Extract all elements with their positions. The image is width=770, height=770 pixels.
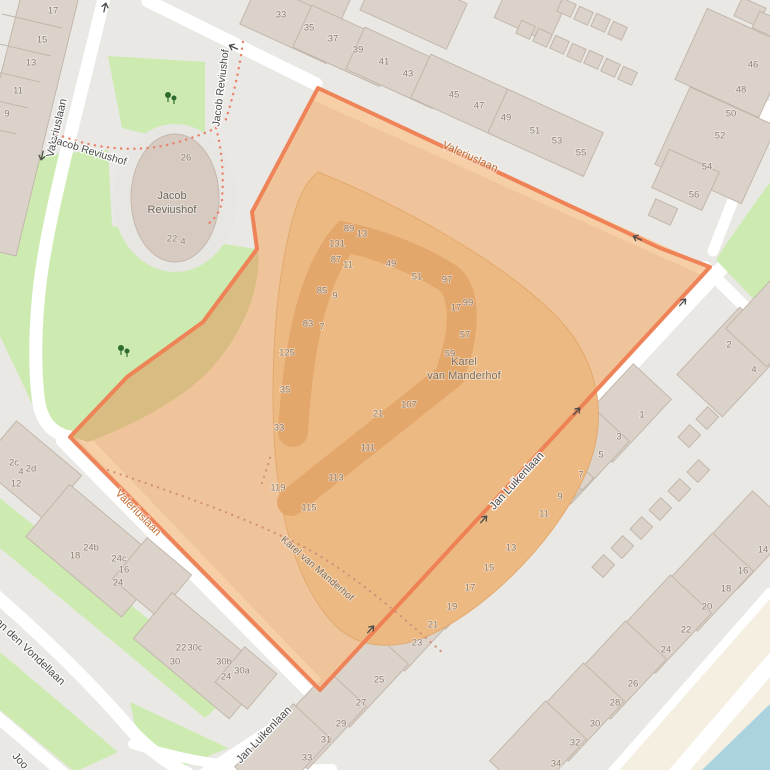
house-number: 39 bbox=[353, 45, 364, 56]
house-number: 28 bbox=[610, 698, 621, 709]
house-number: 99 bbox=[463, 298, 474, 309]
house-number: 49 bbox=[386, 259, 397, 270]
house-number: 24b bbox=[83, 543, 99, 554]
house-number: 30b bbox=[216, 657, 232, 668]
house-number: 31 bbox=[321, 735, 332, 746]
house-number: 51 bbox=[412, 272, 423, 283]
house-number: 43 bbox=[403, 69, 414, 80]
house-number: 33 bbox=[276, 10, 287, 21]
house-number: 27 bbox=[356, 698, 367, 709]
house-number: 34 bbox=[551, 759, 562, 770]
house-number: 16 bbox=[119, 565, 130, 576]
house-number: 97 bbox=[442, 275, 453, 286]
house-number: 4 bbox=[18, 467, 23, 478]
house-number: 111 bbox=[361, 443, 375, 454]
house-number: 49 bbox=[501, 113, 512, 124]
house-number: 26 bbox=[628, 679, 639, 690]
house-number: 11 bbox=[343, 260, 353, 271]
house-number: 16 bbox=[738, 566, 749, 577]
house-number: 32 bbox=[570, 738, 581, 749]
house-number: 3 bbox=[616, 432, 621, 443]
house-number: 24 bbox=[661, 645, 672, 656]
house-number: 87 bbox=[331, 255, 342, 266]
house-number: 57 bbox=[460, 330, 471, 341]
house-number: 17 bbox=[48, 6, 59, 17]
house-number: 33 bbox=[274, 423, 285, 434]
house-number: 41 bbox=[379, 57, 390, 68]
house-number: 56 bbox=[689, 190, 700, 201]
house-number: 113 bbox=[328, 473, 343, 484]
house-number: 52 bbox=[715, 131, 726, 142]
house-number: 19 bbox=[447, 602, 458, 613]
house-number: 131 bbox=[329, 239, 345, 250]
house-number: 17 bbox=[451, 303, 462, 314]
house-number: 46 bbox=[748, 60, 759, 71]
place-label-jacob-reviushof-line2: Reviushof bbox=[148, 204, 198, 216]
house-number: 30c bbox=[187, 643, 203, 654]
house-number: 4 bbox=[180, 237, 185, 248]
house-number: 24 bbox=[113, 578, 124, 589]
house-number: 33 bbox=[302, 753, 313, 764]
house-number: 1 bbox=[639, 410, 644, 421]
place-label-karel-van-manderhof-line2: van Manderhof bbox=[427, 370, 501, 382]
house-number: 12 bbox=[11, 479, 22, 490]
house-number: 55 bbox=[576, 148, 587, 159]
house-number: 5 bbox=[598, 450, 603, 461]
house-number: 115 bbox=[301, 503, 316, 514]
house-number: 25 bbox=[374, 675, 385, 686]
house-number: 13 bbox=[357, 229, 368, 240]
house-number: 13 bbox=[26, 58, 37, 69]
house-number: 15 bbox=[484, 563, 495, 574]
house-number: 11 bbox=[539, 509, 549, 520]
house-number: 51 bbox=[530, 126, 541, 137]
house-number: 24 bbox=[221, 672, 232, 683]
house-number: 11 bbox=[13, 86, 23, 97]
house-number: 9 bbox=[557, 492, 562, 503]
house-number: 48 bbox=[736, 85, 747, 96]
house-number: 7 bbox=[578, 470, 583, 481]
house-number: 30 bbox=[170, 657, 181, 668]
house-number: 125 bbox=[279, 348, 295, 359]
house-number: 22 bbox=[176, 643, 187, 654]
house-number: 26 bbox=[181, 153, 192, 164]
house-number: 2 bbox=[726, 340, 731, 351]
house-number: 18 bbox=[70, 551, 81, 562]
house-number: 85 bbox=[317, 286, 328, 297]
house-number: 35 bbox=[280, 385, 291, 396]
house-number: 18 bbox=[721, 584, 732, 595]
house-number: 22 bbox=[681, 625, 692, 636]
house-number: 2d bbox=[26, 464, 37, 475]
house-number: 22 bbox=[167, 234, 178, 245]
house-number: 50 bbox=[726, 109, 737, 120]
house-number: 53 bbox=[552, 136, 563, 147]
house-number: 15 bbox=[37, 35, 48, 46]
house-number: 35 bbox=[304, 23, 315, 34]
house-number: 17 bbox=[465, 583, 476, 594]
house-number: 24c bbox=[111, 554, 127, 565]
house-number: 45 bbox=[449, 90, 460, 101]
house-number: 54 bbox=[702, 162, 713, 173]
house-number: 119 bbox=[270, 483, 285, 494]
house-number: 37 bbox=[328, 34, 339, 45]
place-label-jacob-reviushof-line1: Jacob bbox=[157, 190, 186, 202]
house-number: 20 bbox=[702, 602, 713, 613]
house-number: 59 bbox=[445, 349, 456, 360]
house-number: 21 bbox=[373, 409, 384, 420]
house-number: 9 bbox=[4, 109, 9, 120]
house-number: 107 bbox=[401, 400, 417, 411]
house-number: 21 bbox=[428, 620, 439, 631]
map-canvas[interactable]: Valeriuslaan Valeriuslaan Valeriuslaan J… bbox=[0, 0, 770, 770]
house-number: 30a bbox=[234, 666, 251, 677]
house-number: 47 bbox=[474, 101, 485, 112]
house-number: 29 bbox=[336, 719, 347, 730]
house-number: 23 bbox=[412, 638, 423, 649]
house-number: 14 bbox=[758, 545, 769, 556]
house-number: 4 bbox=[751, 365, 756, 376]
house-number: 30 bbox=[590, 719, 601, 730]
house-number: 13 bbox=[506, 543, 517, 554]
house-number: 7 bbox=[319, 322, 324, 333]
house-number: 9 bbox=[332, 291, 337, 302]
house-number: 83 bbox=[303, 319, 314, 330]
house-number: 89 bbox=[344, 224, 355, 235]
